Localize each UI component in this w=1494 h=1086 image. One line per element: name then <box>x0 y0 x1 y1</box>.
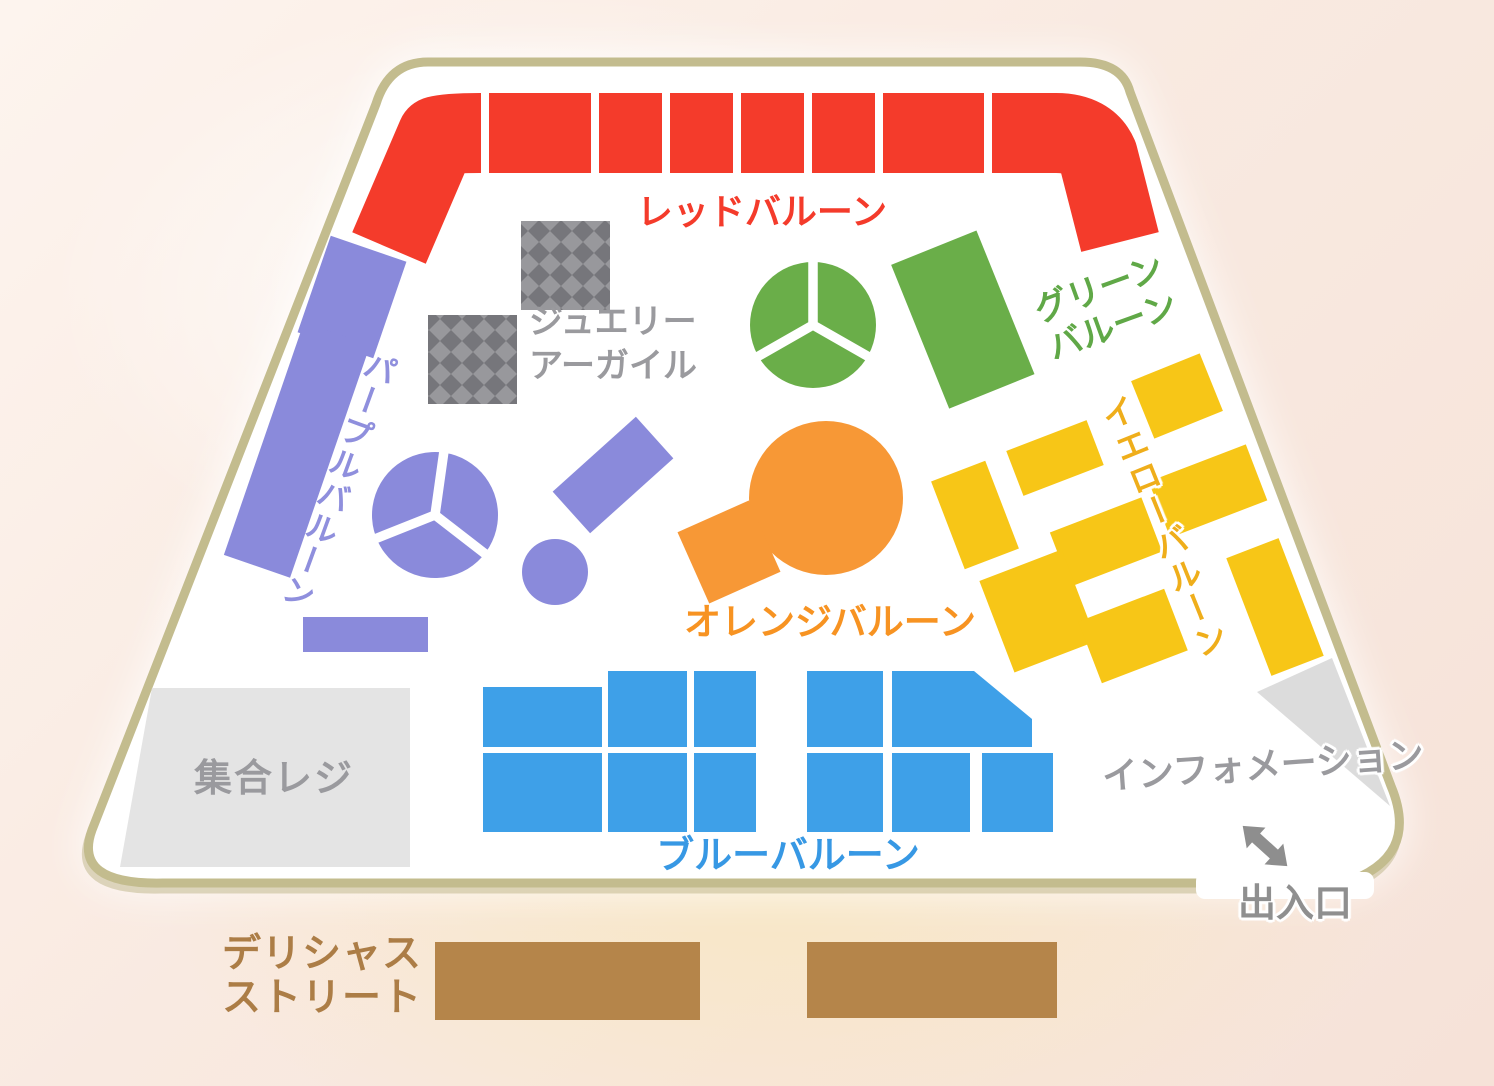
zone-delicious-street <box>435 942 1057 1020</box>
delicious-street-counter <box>435 942 700 1020</box>
jewelry-argyle-label: ジュエリー アーガイル <box>529 300 697 388</box>
blue-shelf <box>608 753 687 832</box>
floor-map: レッドバルーン ジュエリー アーガイル グリーン バルーン パープルバルーン イ… <box>0 0 1494 1086</box>
purple-end-shelf <box>303 617 428 652</box>
argyle-square <box>428 315 517 404</box>
delicious-street-label: デリシャス ストリート <box>222 932 422 1019</box>
blue-shelf <box>807 753 883 832</box>
blue-shelf <box>694 753 756 832</box>
checkout-label: 集合レジ <box>194 756 354 802</box>
jewelry-argyle-label-line2: アーガイル <box>529 347 697 385</box>
blue-shelf <box>892 753 970 832</box>
orange-round-display <box>749 421 903 575</box>
blue-shelf <box>694 671 756 747</box>
purple-small-round-display <box>522 539 588 605</box>
argyle-square <box>521 221 610 310</box>
blue-shelf <box>483 753 602 832</box>
blue-zone-label: ブルーバルーン <box>656 833 920 879</box>
delicious-street-label-line2: ストリート <box>222 976 422 1019</box>
orange-zone-label: オレンジバルーン <box>684 599 976 644</box>
blue-shelf <box>807 671 883 747</box>
delicious-street-counter <box>807 942 1057 1018</box>
delicious-street-label-line1: デリシャス <box>222 932 422 975</box>
blue-shelf <box>483 687 602 747</box>
blue-shelf <box>608 671 687 747</box>
blue-shelf <box>982 753 1053 832</box>
jewelry-argyle-label-line1: ジュエリー <box>529 303 697 341</box>
entrance-label: 出入口 <box>1238 881 1352 927</box>
red-zone-label: レッドバルーン <box>637 190 887 234</box>
